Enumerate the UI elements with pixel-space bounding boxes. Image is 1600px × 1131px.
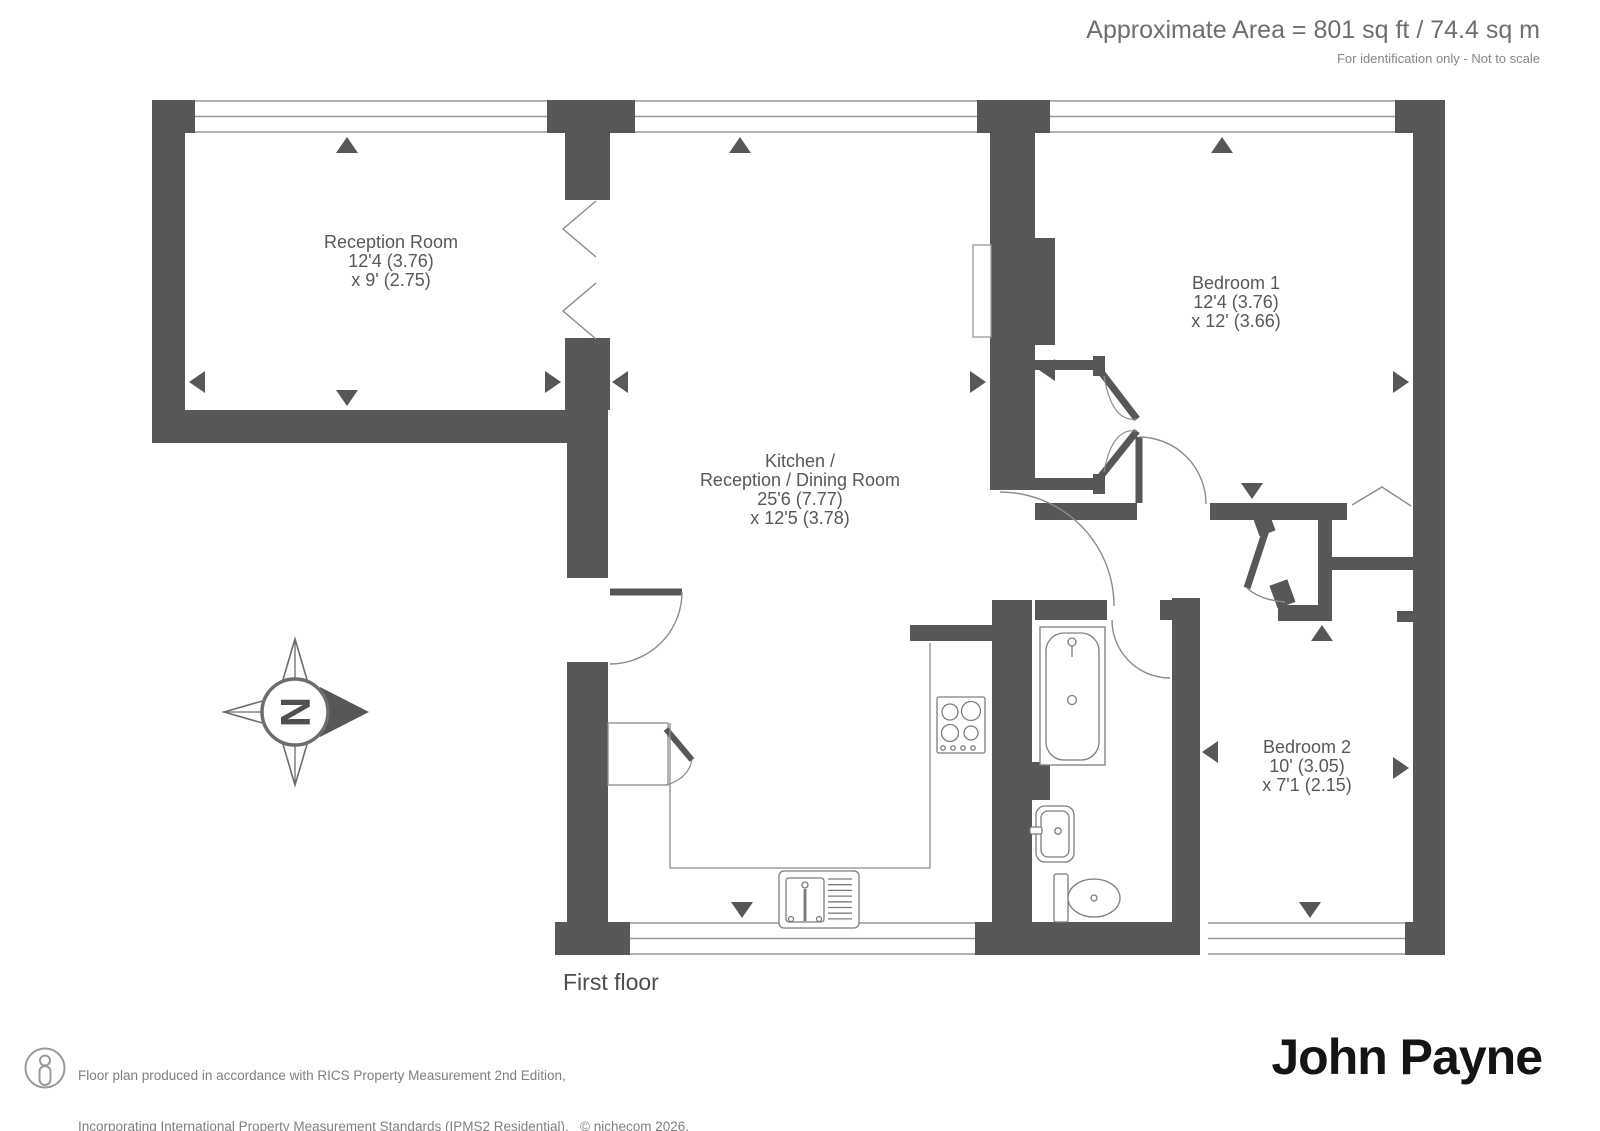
room-dimensions: 12'4 (3.76)	[1193, 292, 1279, 312]
disclaimer-line: Incorporating International Property Mea…	[78, 1118, 990, 1131]
disclaimer-text: Floor plan produced in accordance with R…	[78, 1033, 990, 1131]
floor-plan-canvas: N Reception Room 12'4 (3.76) x 9' (2.75)…	[0, 0, 1600, 1131]
room-dimensions: 12'4 (3.76)	[348, 251, 434, 271]
door-hinge-stub	[1269, 579, 1295, 608]
room-dimensions: 25'6 (7.77)	[757, 489, 843, 509]
room-dimensions: x 12'5 (3.78)	[750, 508, 850, 528]
compass-icon: N	[224, 639, 369, 785]
toilet-icon	[1054, 874, 1120, 922]
window-reception-top	[195, 100, 547, 133]
window-bedroom1-top	[1050, 100, 1395, 133]
hob-icon	[937, 697, 985, 753]
room-dimensions: x 9' (2.75)	[351, 270, 430, 290]
basin-icon	[1030, 806, 1074, 862]
room-name: Bedroom 2	[1263, 737, 1351, 757]
room-name: Reception / Dining Room	[700, 470, 900, 490]
room-label-bedroom2: Bedroom 2 10' (3.05) x 7'1 (2.15)	[1262, 737, 1351, 795]
room-dimensions: x 7'1 (2.15)	[1262, 775, 1351, 795]
cupboard-folding-door	[1352, 487, 1411, 506]
brand-logo: John Payne	[1271, 1028, 1542, 1086]
compass-letter: N	[272, 697, 319, 727]
window-bedroom2-bottom	[1208, 922, 1405, 955]
floor-plan-page: Approximate Area = 801 sq ft / 74.4 sq m…	[0, 0, 1600, 1131]
wall-recess	[973, 245, 991, 337]
door-leaf	[1247, 530, 1266, 588]
door-swing-arc	[1112, 620, 1170, 678]
bifold-door-arc	[1104, 376, 1137, 472]
sink-icon	[779, 871, 859, 928]
disclaimer-line: Floor plan produced in accordance with R…	[78, 1067, 990, 1084]
room-dimensions: 10' (3.05)	[1269, 756, 1344, 776]
room-name: Reception Room	[324, 232, 458, 252]
window-kitchen-top	[635, 100, 977, 133]
double-door-reception	[563, 201, 596, 339]
room-dimensions: x 12' (3.66)	[1191, 311, 1280, 331]
person-icon	[24, 1047, 66, 1089]
bathtub-icon	[1040, 627, 1105, 765]
room-label-kitchen: Kitchen / Reception / Dining Room 25'6 (…	[700, 451, 900, 528]
room-name: Bedroom 1	[1192, 273, 1280, 293]
dimension-arrow-up	[336, 137, 1333, 641]
closet-kitchen	[608, 723, 668, 785]
kitchen-counter	[670, 643, 930, 868]
floor-label: First floor	[563, 969, 659, 995]
door-swing-arc	[610, 592, 682, 664]
room-label-bedroom1: Bedroom 1 12'4 (3.76) x 12' (3.66)	[1191, 273, 1280, 331]
room-name: Kitchen /	[765, 451, 835, 471]
door-swing-arc	[1139, 437, 1206, 504]
room-label-reception: Reception Room 12'4 (3.76) x 9' (2.75)	[324, 232, 458, 290]
